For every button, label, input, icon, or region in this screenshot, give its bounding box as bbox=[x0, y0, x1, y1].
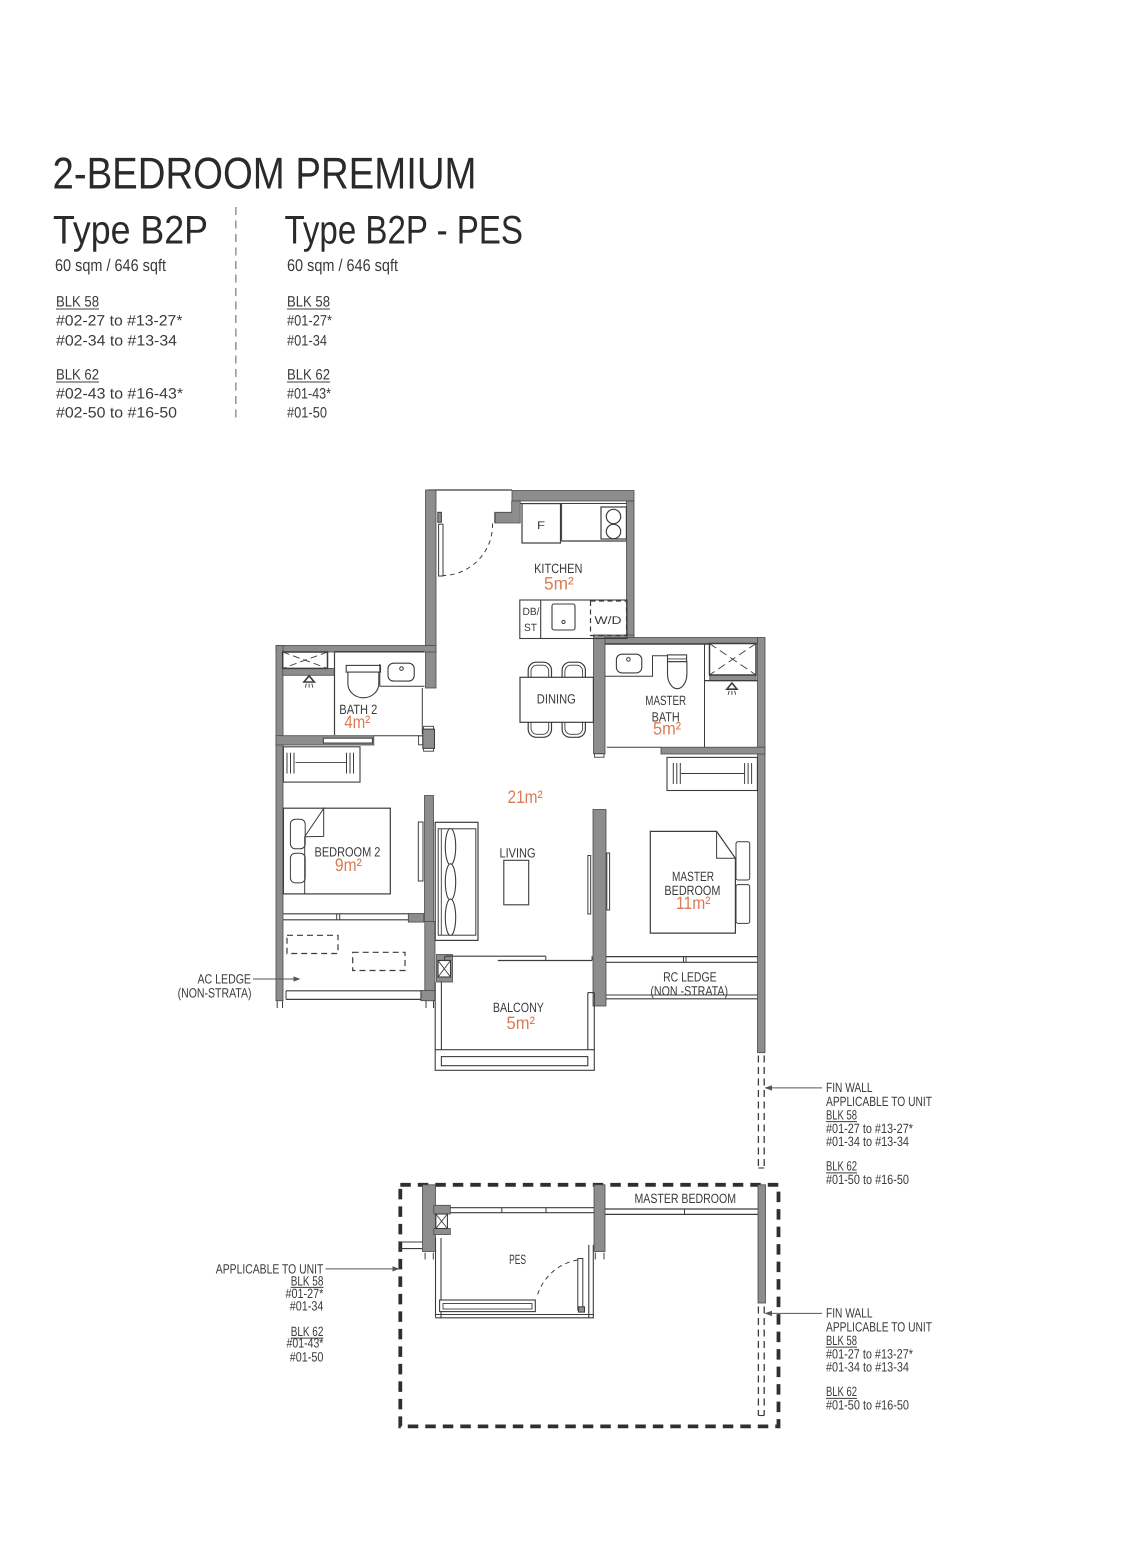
svg-text:DB/: DB/ bbox=[523, 606, 540, 618]
svg-text:W/D: W/D bbox=[595, 615, 622, 627]
svg-text:Type B2P - PES: Type B2P - PES bbox=[285, 209, 524, 253]
svg-text:#01-50 to #16-50: #01-50 to #16-50 bbox=[826, 1172, 909, 1187]
svg-text:11m²: 11m² bbox=[676, 893, 710, 913]
svg-text:F: F bbox=[537, 520, 545, 532]
svg-text:#01-34 to #13-34: #01-34 to #13-34 bbox=[826, 1360, 909, 1375]
svg-text:9m²: 9m² bbox=[335, 855, 362, 875]
svg-text:#01-50 to #16-50: #01-50 to #16-50 bbox=[826, 1398, 909, 1413]
svg-text:BLK 58: BLK 58 bbox=[287, 294, 330, 311]
svg-text:BLK 58: BLK 58 bbox=[56, 294, 99, 311]
svg-text:(NON-STRATA): (NON-STRATA) bbox=[178, 986, 252, 1001]
svg-text:AC LEDGE: AC LEDGE bbox=[198, 971, 252, 986]
svg-text:2-BEDROOM PREMIUM: 2-BEDROOM PREMIUM bbox=[53, 150, 477, 199]
svg-text:BLK 62: BLK 62 bbox=[56, 367, 99, 384]
svg-text:BLK 58: BLK 58 bbox=[826, 1333, 857, 1348]
svg-text:MASTER BEDROOM: MASTER BEDROOM bbox=[635, 1191, 737, 1206]
svg-text:#01-50: #01-50 bbox=[290, 1349, 324, 1364]
svg-text:BLK 58: BLK 58 bbox=[826, 1107, 857, 1122]
svg-text:#01-27*: #01-27* bbox=[287, 313, 332, 330]
svg-text:4m²: 4m² bbox=[344, 712, 370, 732]
svg-text:RC LEDGE: RC LEDGE bbox=[663, 970, 717, 985]
svg-text:BLK 62: BLK 62 bbox=[287, 367, 330, 384]
svg-text:FIN WALL: FIN WALL bbox=[826, 1306, 873, 1321]
svg-text:DINING: DINING bbox=[537, 691, 576, 706]
svg-text:5m²: 5m² bbox=[507, 1013, 536, 1033]
svg-text:#01-34: #01-34 bbox=[287, 333, 327, 350]
svg-text:5m²: 5m² bbox=[653, 719, 681, 739]
svg-text:#01-50: #01-50 bbox=[287, 405, 327, 422]
svg-text:#02-50 to #16-50: #02-50 to #16-50 bbox=[56, 405, 177, 422]
svg-text:MASTER: MASTER bbox=[672, 869, 714, 884]
svg-text:Type B2P: Type B2P bbox=[53, 209, 208, 253]
svg-text:60 sqm / 646 sqft: 60 sqm / 646 sqft bbox=[55, 256, 166, 275]
svg-text:#02-27 to #13-27*: #02-27 to #13-27* bbox=[56, 313, 183, 330]
svg-text:#02-43 to #16-43*: #02-43 to #16-43* bbox=[56, 386, 183, 403]
svg-text:5m²: 5m² bbox=[544, 574, 574, 594]
svg-text:60 sqm / 646 sqft: 60 sqm / 646 sqft bbox=[287, 256, 398, 275]
svg-text:MASTER: MASTER bbox=[645, 693, 686, 708]
svg-text:FIN WALL: FIN WALL bbox=[826, 1080, 873, 1095]
svg-text:#02-34 to #13-34: #02-34 to #13-34 bbox=[56, 333, 177, 350]
svg-text:#01-34 to #13-34: #01-34 to #13-34 bbox=[826, 1134, 909, 1149]
svg-text:#01-34: #01-34 bbox=[290, 1299, 324, 1314]
svg-text:LIVING: LIVING bbox=[500, 846, 536, 861]
svg-text:(NON -STRATA): (NON -STRATA) bbox=[650, 984, 728, 999]
svg-text:#01-43*: #01-43* bbox=[287, 386, 331, 403]
svg-text:PES: PES bbox=[509, 1252, 526, 1267]
svg-text:ST: ST bbox=[524, 622, 538, 634]
svg-text:21m²: 21m² bbox=[508, 787, 543, 807]
